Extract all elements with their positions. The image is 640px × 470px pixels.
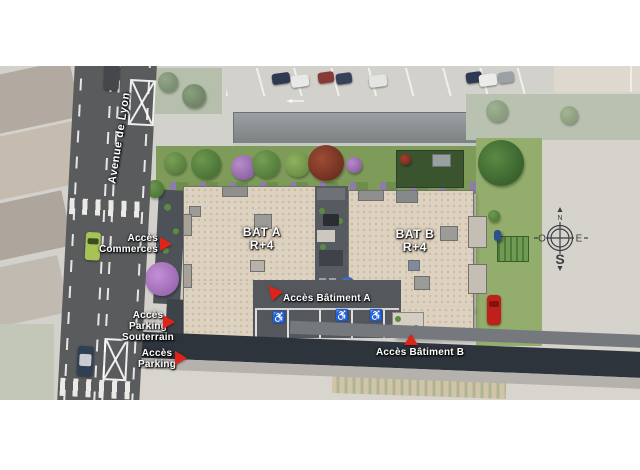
car: [104, 66, 120, 90]
table-set: [323, 214, 339, 226]
roof-element: [408, 260, 420, 271]
access-batiment-a-label: Accès Bâtiment A: [283, 293, 371, 304]
balcony: [468, 216, 487, 248]
terrace: [319, 250, 343, 266]
red-tree: [308, 145, 344, 181]
flowering-tree: [145, 262, 179, 296]
roof-terrace: [222, 186, 248, 197]
tree: [182, 84, 206, 108]
building-a-wing: [183, 281, 257, 342]
car: [478, 73, 497, 87]
site-plan-image: ♿ ♿ ♿: [0, 0, 640, 470]
compass-south: S: [555, 251, 564, 267]
person: [494, 230, 501, 241]
crosswalk: [69, 198, 142, 218]
building-a-label: BAT A R+4: [232, 226, 292, 252]
car: [290, 74, 309, 88]
compass-north: N: [557, 215, 562, 222]
access-parking-souterrain-marker: [163, 315, 175, 329]
pergola: [497, 236, 529, 262]
car: [335, 72, 352, 85]
red-car: [487, 295, 501, 325]
terrace: [317, 188, 345, 200]
crosswalk: [59, 378, 132, 400]
building-b-floors: R+4: [385, 241, 445, 254]
tree: [158, 72, 178, 92]
roof-terrace: [358, 190, 384, 201]
roof-terrace: [396, 190, 418, 203]
bush: [560, 106, 578, 124]
car: [368, 74, 387, 88]
car-windshield: [489, 301, 499, 307]
car: [497, 71, 514, 84]
handicap-icon: ♿: [272, 313, 286, 324]
large-tree: [478, 140, 524, 186]
roof-terrace: [183, 264, 192, 288]
handicap-icon: ♿: [335, 311, 349, 322]
access-commerces-line2: Commerces: [96, 244, 158, 255]
bush: [486, 100, 508, 122]
bush: [488, 210, 500, 222]
tree: [191, 149, 221, 179]
compass-rose: N O E S: [534, 206, 590, 272]
road-arrow-marking: [286, 99, 304, 103]
access-batiment-b-label: Accès Bâtiment B: [376, 347, 464, 358]
access-commerces-label: Accès Commerces: [96, 233, 158, 255]
car-roof: [79, 354, 92, 367]
roof-element: [250, 260, 265, 272]
building-b-label: BAT B R+4: [385, 228, 445, 254]
access-commerces-line1: Accès: [96, 233, 158, 244]
blue-car: [77, 346, 95, 377]
access-parking-souterrain-line3: Souterrain: [115, 332, 181, 343]
car: [317, 71, 334, 84]
compass-east: E: [576, 234, 583, 245]
red-bush: [400, 154, 411, 165]
flowering-tree: [346, 157, 362, 173]
roof-element: [414, 276, 430, 290]
planter: [395, 316, 401, 322]
keep-clear-marking: [102, 338, 128, 381]
handicap-icon: ♿: [369, 311, 383, 322]
keep-clear-marking: [128, 79, 156, 126]
planter: [164, 204, 171, 211]
aerial-photo: ♿ ♿ ♿: [0, 66, 640, 400]
tree: [252, 150, 280, 178]
tree: [164, 152, 186, 174]
tree: [285, 152, 310, 177]
garden-shed: [432, 154, 451, 167]
roof-terrace: [183, 214, 192, 236]
rooftop: [554, 66, 640, 94]
rooftop: [0, 190, 73, 261]
balcony: [468, 264, 487, 294]
access-batiment-b-marker: [404, 334, 418, 345]
access-parking-marker: [175, 351, 187, 365]
garden-patch: [0, 324, 54, 400]
building-a-floors: R+4: [232, 239, 292, 252]
planter: [173, 228, 179, 234]
access-commerces-marker: [160, 237, 172, 251]
terrace: [317, 230, 335, 242]
rooftop: [0, 255, 69, 327]
compass-west: O: [538, 234, 546, 245]
